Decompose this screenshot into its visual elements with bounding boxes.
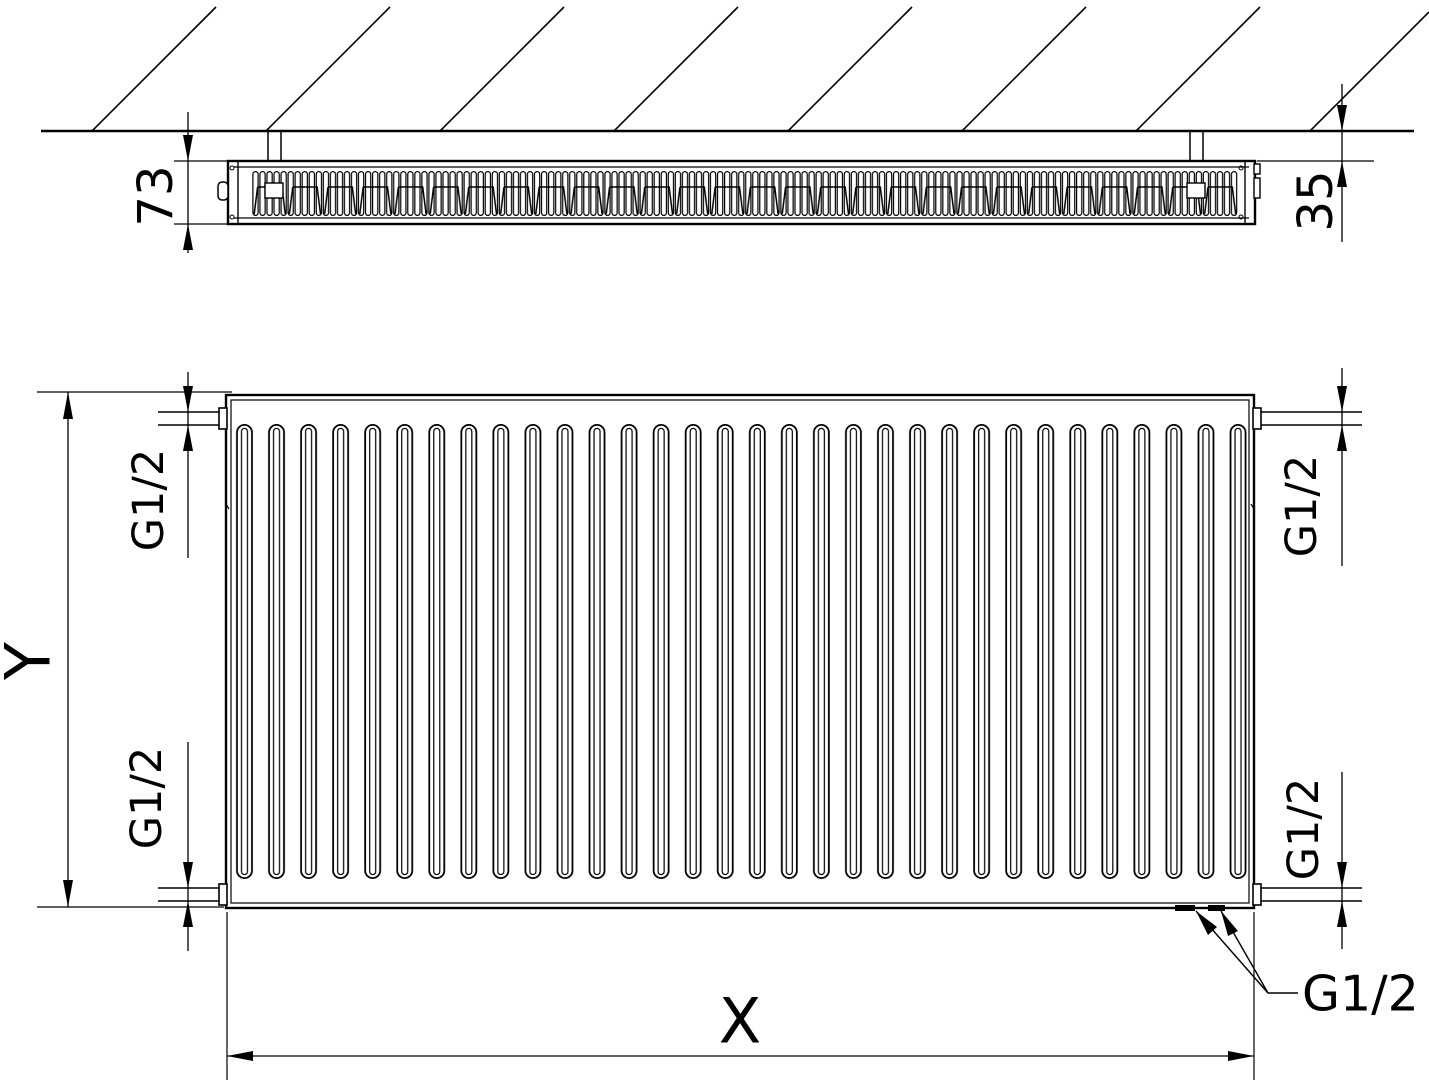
connection-dimension-top-right: G1/2 [1277, 368, 1347, 566]
connection-stub-bottom-right [1254, 888, 1362, 901]
connection-stub-top-left [158, 412, 226, 425]
connection-label-top-right: G1/2 [1277, 455, 1327, 558]
wall-hatch [92, 7, 1429, 131]
bracket-foot-left [265, 183, 283, 198]
connection-label-bottom-left: G1/2 [122, 747, 172, 850]
mounting-bracket-right [1190, 131, 1203, 162]
depth-dimension-label: 73 [128, 165, 184, 226]
mounting-bracket-left [268, 131, 281, 162]
connection-dimension-bottom-right: G1/2 [1279, 772, 1347, 949]
bracket-foot-right [1187, 183, 1205, 198]
technical-drawing: 73 35 [0, 0, 1429, 1091]
convector-fins [252, 171, 1238, 216]
connection-label-bottom-right: G1/2 [1279, 778, 1329, 881]
wall-distance-dimension-label: 35 [1288, 170, 1344, 231]
stub-flange-top-right [1253, 408, 1261, 429]
stub-flange-bottom-left [219, 884, 227, 905]
connection-stub-bottom-left [158, 888, 226, 901]
stub-flange-top-left [219, 408, 227, 429]
width-dimension-label: X [719, 985, 761, 1058]
bottom-connections-leader: G1/2 [1196, 911, 1419, 1023]
connection-label-top-left: G1/2 [124, 449, 174, 552]
height-dimension-label: Y [0, 642, 65, 681]
connection-stub-top-right [1254, 412, 1362, 425]
connection-dimension-bottom-left: G1/2 [122, 742, 193, 951]
bottom-connection-mark-2 [1208, 905, 1225, 911]
width-dimension: X [227, 912, 1254, 1080]
connection-dimension-top-left: G1/2 [124, 372, 193, 558]
bottom-connection-mark-1 [1175, 905, 1195, 911]
connection-label-bottom: G1/2 [1302, 966, 1419, 1023]
front-view: Y X G1/2 G1/2 G1/2 [0, 368, 1419, 1080]
panel-grooves [228, 424, 1254, 879]
stub-flange-bottom-right [1253, 884, 1261, 905]
top-view: 73 35 [41, 7, 1429, 253]
wall-distance-dimension: 35 [1257, 84, 1374, 242]
height-dimension: Y [0, 392, 232, 907]
